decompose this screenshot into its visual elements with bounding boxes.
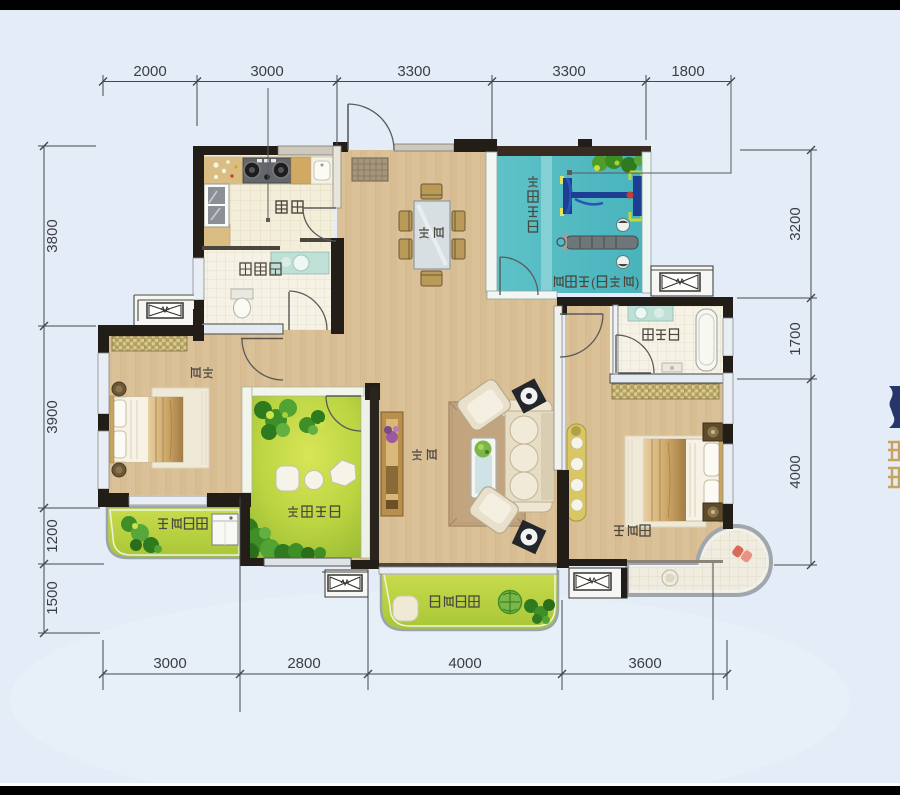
svg-text:3600: 3600 [628, 655, 661, 672]
svg-text:2800: 2800 [287, 655, 320, 672]
svg-text:2000: 2000 [133, 63, 166, 80]
svg-text:1700: 1700 [787, 322, 804, 355]
svg-text:): ) [635, 275, 639, 290]
svg-text:3900: 3900 [44, 400, 61, 433]
svg-text:1200: 1200 [44, 519, 61, 552]
svg-text:3200: 3200 [787, 207, 804, 240]
svg-text:4000: 4000 [787, 455, 804, 488]
svg-text:1500: 1500 [44, 581, 61, 614]
svg-text:3300: 3300 [397, 63, 430, 80]
svg-text:3800: 3800 [44, 219, 61, 252]
svg-text:4000: 4000 [448, 655, 481, 672]
svg-text:3000: 3000 [250, 63, 283, 80]
svg-text:3000: 3000 [153, 655, 186, 672]
svg-text:3300: 3300 [552, 63, 585, 80]
svg-text:1800: 1800 [671, 63, 704, 80]
svg-text:(: ( [591, 275, 596, 290]
